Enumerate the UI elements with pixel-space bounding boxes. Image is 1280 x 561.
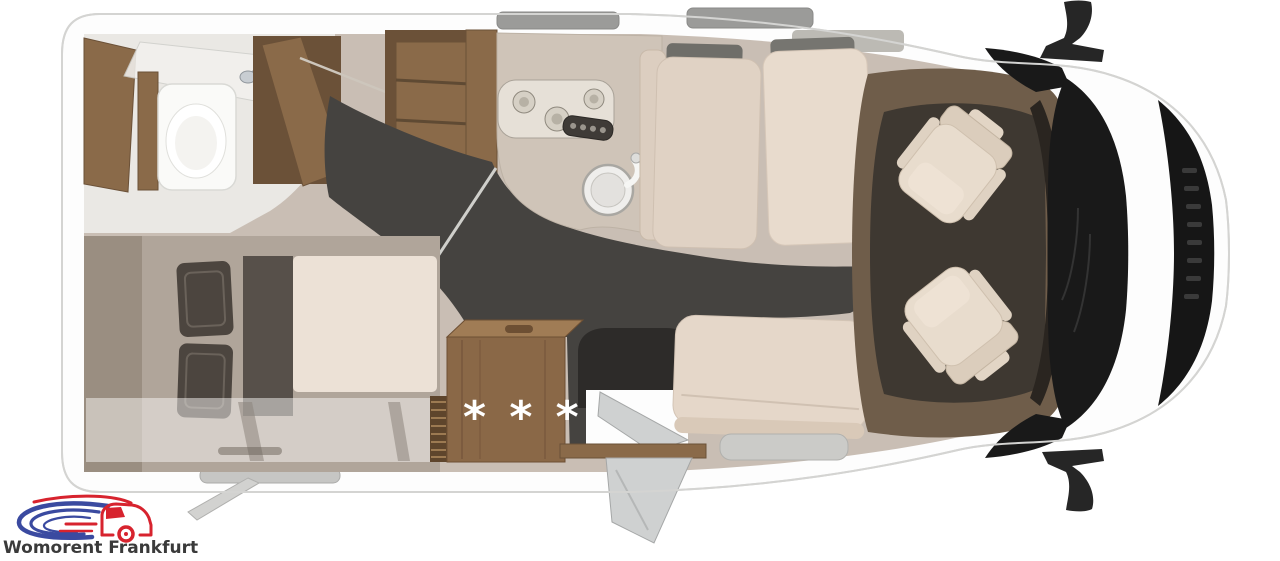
star-rating-label: * * * (463, 392, 583, 443)
dinette-bench-front (672, 315, 870, 440)
dealer-logo (19, 496, 151, 541)
side-mirror-icon (1040, 1, 1104, 63)
open-door-panel (606, 458, 692, 543)
side-mirror-icon (1042, 449, 1104, 511)
dinette-bench-rear (652, 43, 761, 250)
dealer-name-label: Womorent Frankfurt (3, 538, 223, 558)
bathroom-cabinet (84, 38, 136, 192)
stove-hob (498, 80, 614, 141)
vent-slats (430, 396, 447, 462)
bed-runner (243, 256, 293, 416)
door-sill (560, 444, 706, 458)
entry-step-table (720, 434, 848, 460)
toilet (138, 72, 236, 190)
pillow (176, 261, 234, 338)
floorplan-image: * * * (0, 0, 1280, 561)
logo-swoosh-icon (19, 503, 108, 537)
cab (852, 69, 1068, 438)
logo-wheel-hub (124, 532, 128, 536)
star-cabinet: * * * (430, 320, 583, 462)
mattress (293, 256, 437, 392)
awning-support (188, 468, 340, 520)
motorhome-floorplan-page: * * * (0, 0, 1280, 561)
